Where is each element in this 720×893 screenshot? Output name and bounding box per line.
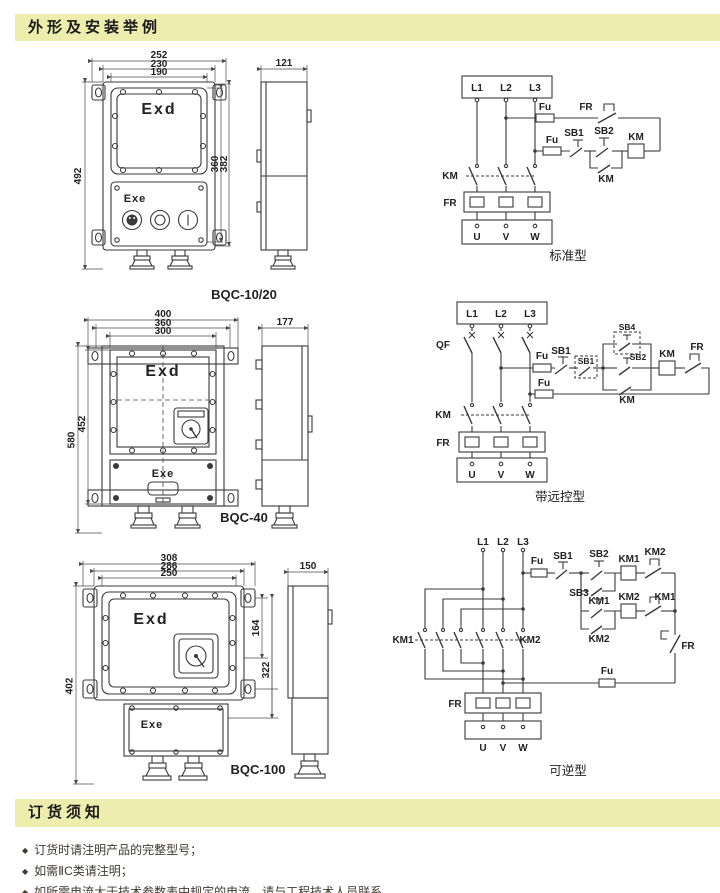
ordering-note-3: ◆如所需电流大于技术参数表中规定的电流，请与工程技术人员联系。 [22,883,394,893]
svg-text:121: 121 [276,58,293,69]
svg-text:KM2: KM2 [644,547,666,558]
side-view: 121 [257,58,311,269]
svg-text:452: 452 [77,415,88,432]
svg-text:SB2: SB2 [589,549,609,560]
svg-text:SB2: SB2 [630,352,647,362]
svg-text:QF: QF [436,340,450,351]
svg-text:W: W [530,232,540,243]
svg-text:V: V [498,470,505,481]
marking-exd: Exd [141,101,176,118]
section-header-outline: 外形及安装举例 [15,14,720,41]
outline-drawing-bqc-100: Exd Exe 308 [68,558,334,793]
svg-text:164: 164 [251,619,262,636]
outline-drawing-bqc-10-20: Exd Exe [75,52,320,282]
ordering-note-2: ◆如需ⅡC类请注明； [22,862,133,879]
outline-drawing-bqc-40: Exd Exe 400 [70,312,320,540]
svg-text:L3: L3 [529,83,541,94]
km-main-contacts: KM [442,164,544,186]
svg-text:FR: FR [579,102,593,113]
svg-text:190: 190 [151,67,168,78]
front-view: Exd Exe [88,346,238,528]
svg-text:FR: FR [690,342,704,353]
front-view: Exd Exe [83,586,255,780]
bullet-icon: ◆ [22,867,28,876]
svg-text:SB1: SB1 [564,128,584,139]
svg-text:KM: KM [442,171,458,182]
svg-text:177: 177 [277,317,294,328]
svg-text:300: 300 [155,326,172,337]
cable-glands [130,250,192,269]
svg-text:KM1: KM1 [618,554,640,565]
rotary-switch [174,408,208,444]
svg-text:Fu: Fu [539,102,551,113]
svg-text:Fu: Fu [531,556,543,567]
section-title: 外形及安装举例 [15,14,720,41]
figure-caption-bqc-100: BQC-100 [193,762,323,777]
svg-text:SB1: SB1 [551,346,571,357]
bullet-icon: ◆ [22,846,28,855]
svg-text:FR: FR [436,438,450,449]
side-view: 150 [288,561,332,778]
figure-caption-bqc-40: BQC-40 [179,510,309,525]
svg-text:KM: KM [619,395,635,406]
circuit-caption-remote: 带远控型 [500,486,620,505]
marking-exd: Exd [145,363,180,380]
svg-text:V: V [503,232,510,243]
svg-text:U: U [468,470,475,481]
km1-km2-main-contacts: KM1 KM2 [392,628,541,648]
catalog-page: 外形及安装举例 Exd [0,0,720,893]
front-view: Exd Exe [92,82,226,269]
circuit-caption-standard: 标准型 [518,245,618,264]
svg-text:KM1: KM1 [392,635,414,646]
marking-exe: Exe [152,468,175,480]
qf-breaker: QF [436,331,539,353]
control-circuit: Fu SB1 SB2 KM1 KM1 KM2 S [501,547,695,687]
svg-text:KM2: KM2 [588,634,610,645]
svg-text:FR: FR [443,198,457,209]
svg-text:W: W [525,470,535,481]
bullet-icon: ◆ [22,888,28,893]
svg-text:492: 492 [73,167,84,184]
marking-exe: Exe [141,719,164,731]
svg-text:L3: L3 [517,537,529,548]
svg-text:L1: L1 [477,537,489,548]
svg-text:SB1: SB1 [553,551,573,562]
svg-text:KM: KM [598,174,614,185]
svg-text:L1: L1 [471,83,483,94]
svg-text:Fu: Fu [546,135,558,146]
svg-text:Fu: Fu [536,351,548,362]
svg-text:KM: KM [435,410,451,421]
wiring-diagram-standard: L1 L2 L3 KM FR U V W Fu FR [448,72,718,250]
svg-text:KM: KM [628,132,644,143]
svg-text:402: 402 [65,677,76,694]
svg-text:382: 382 [219,155,230,172]
svg-text:KM: KM [659,349,675,360]
dimensions: 308 286 250 402 164 322 [65,553,279,784]
svg-text:Fu: Fu [601,666,613,677]
svg-text:KM2: KM2 [618,592,640,603]
figure-caption-bqc-10-20: BQC-10/20 [179,287,309,302]
rotary-switch [174,634,218,678]
svg-text:322: 322 [261,661,272,678]
circuit-caption-reversible: 可逆型 [518,760,618,779]
ordering-note-1: ◆订货时请注明产品的完整型号； [22,841,202,858]
section-header-ordering: 订货须知 [15,799,720,827]
svg-text:150: 150 [300,561,317,572]
svg-text:L2: L2 [495,309,507,320]
svg-text:KM2: KM2 [519,635,541,646]
svg-text:U: U [473,232,480,243]
svg-text:Fu: Fu [538,378,550,389]
pushbuttons [123,211,198,230]
svg-text:FR: FR [681,641,695,652]
svg-text:KM1: KM1 [654,592,676,603]
svg-text:V: V [500,743,507,754]
km-main-contacts: KM [435,402,539,426]
svg-text:L1: L1 [466,309,478,320]
svg-text:L3: L3 [524,309,536,320]
svg-text:W: W [518,743,528,754]
svg-text:250: 250 [161,568,178,579]
svg-text:L2: L2 [497,537,509,548]
svg-text:SB4: SB4 [619,322,636,332]
svg-text:SB2: SB2 [594,126,614,137]
marking-exe: Exe [124,193,147,205]
side-view: 177 [256,317,312,528]
svg-text:U: U [479,743,486,754]
svg-text:FR: FR [448,699,462,710]
svg-text:580: 580 [67,431,78,448]
marking-exd: Exd [133,611,168,628]
section-title-ordering: 订货须知 [15,799,720,827]
wiring-diagram-remote: L1 L2 L3 QF Fu SB1 SB1 [433,298,718,490]
svg-text:L2: L2 [500,83,512,94]
svg-text:SB1: SB1 [578,356,595,366]
svg-text:SB3: SB3 [569,588,589,599]
wiring-diagram-reversible: L1 L2 L3 KM1 KM2 FR U V W [403,533,718,761]
